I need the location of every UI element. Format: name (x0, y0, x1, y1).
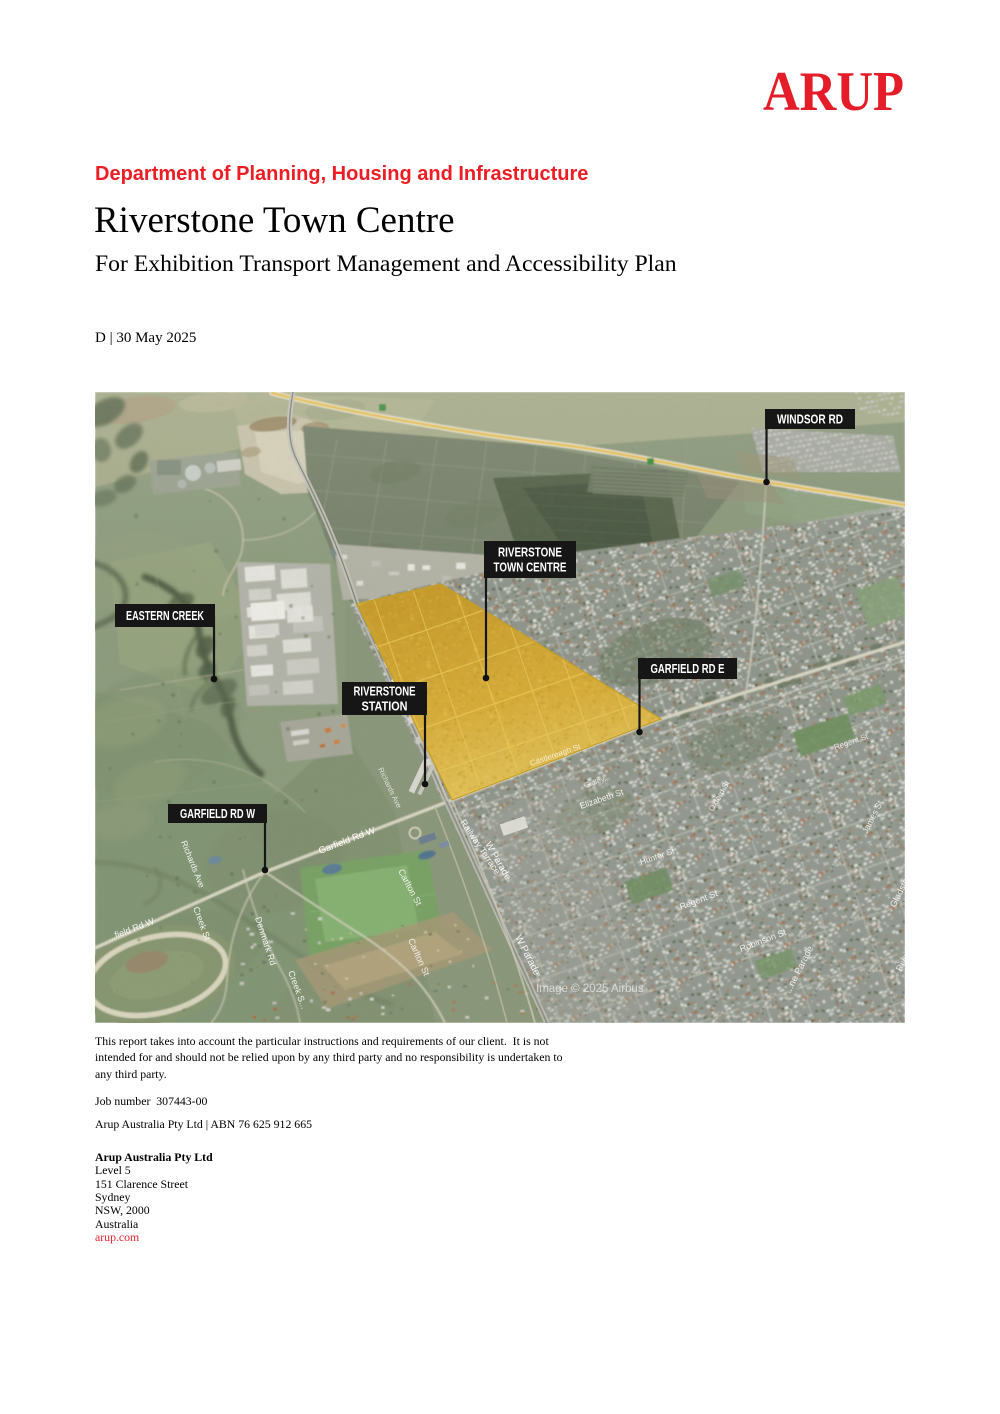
svg-text:GARFIELD RD E: GARFIELD RD E (651, 661, 725, 676)
svg-text:GARFIELD RD W: GARFIELD RD W (180, 806, 256, 821)
svg-text:WINDSOR RD: WINDSOR RD (777, 412, 843, 427)
svg-text:RIVERSTONE: RIVERSTONE (354, 684, 416, 699)
svg-text:Image © 2025 Airbus: Image © 2025 Airbus (536, 983, 644, 995)
svg-text:RIVERSTONE: RIVERSTONE (498, 545, 562, 560)
svg-text:ARUP: ARUP (763, 63, 904, 115)
svg-text:TOWN CENTRE: TOWN CENTRE (494, 560, 567, 575)
svg-text:EASTERN CREEK: EASTERN CREEK (126, 608, 204, 623)
svg-text:STATION: STATION (362, 699, 408, 714)
